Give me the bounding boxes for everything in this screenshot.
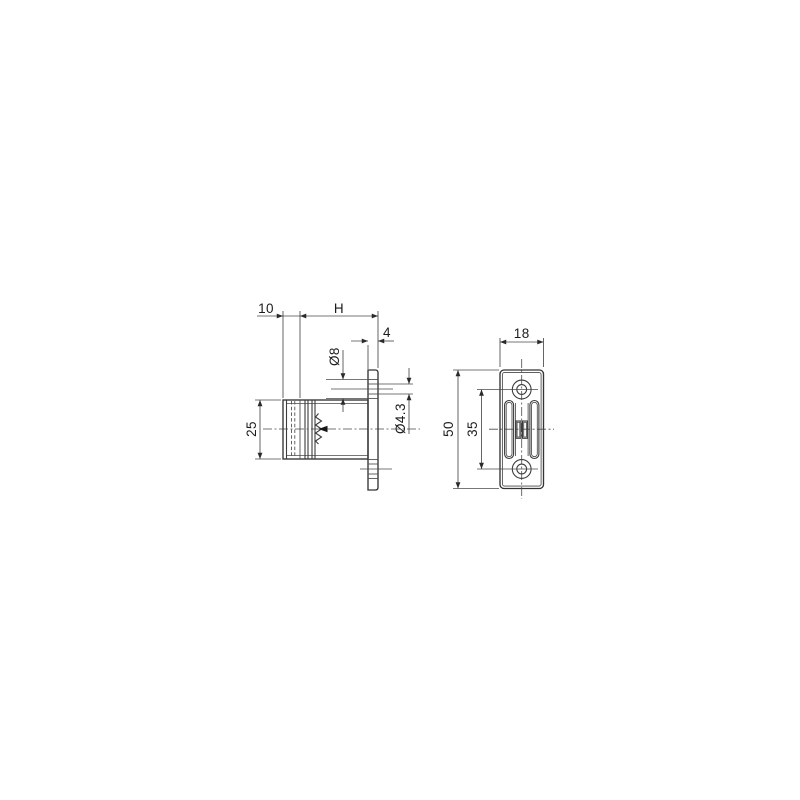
dim-label-35: 35 [465,421,480,437]
dim-label-H: H [334,301,344,316]
side-view: 10 H 4 Ø8 Ø4.3 [244,301,420,490]
dim-4: 4 [351,325,394,369]
dim-dia8: Ø8 [326,347,368,412]
dim-dia4-3: Ø4.3 [378,368,413,434]
front-view: 18 50 35 [441,326,554,499]
dim-10-H: 10 H [257,301,378,398]
dim-label-50: 50 [441,421,456,437]
dim-35: 35 [465,390,482,470]
latch-direction-arrow [319,426,328,433]
dim-25: 25 [244,400,281,459]
dim-label-dia8: Ø8 [327,347,342,366]
dim-label-10: 10 [258,301,274,316]
flange-section [368,370,378,490]
dim-label-25: 25 [244,421,259,437]
dim-label-18: 18 [514,326,530,341]
technical-drawing: 10 H 4 Ø8 Ø4.3 [0,0,800,800]
dim-label-dia4-3: Ø4.3 [393,403,408,434]
dim-label-4: 4 [383,325,391,340]
technical-drawing-page: 10 H 4 Ø8 Ø4.3 [0,0,800,800]
